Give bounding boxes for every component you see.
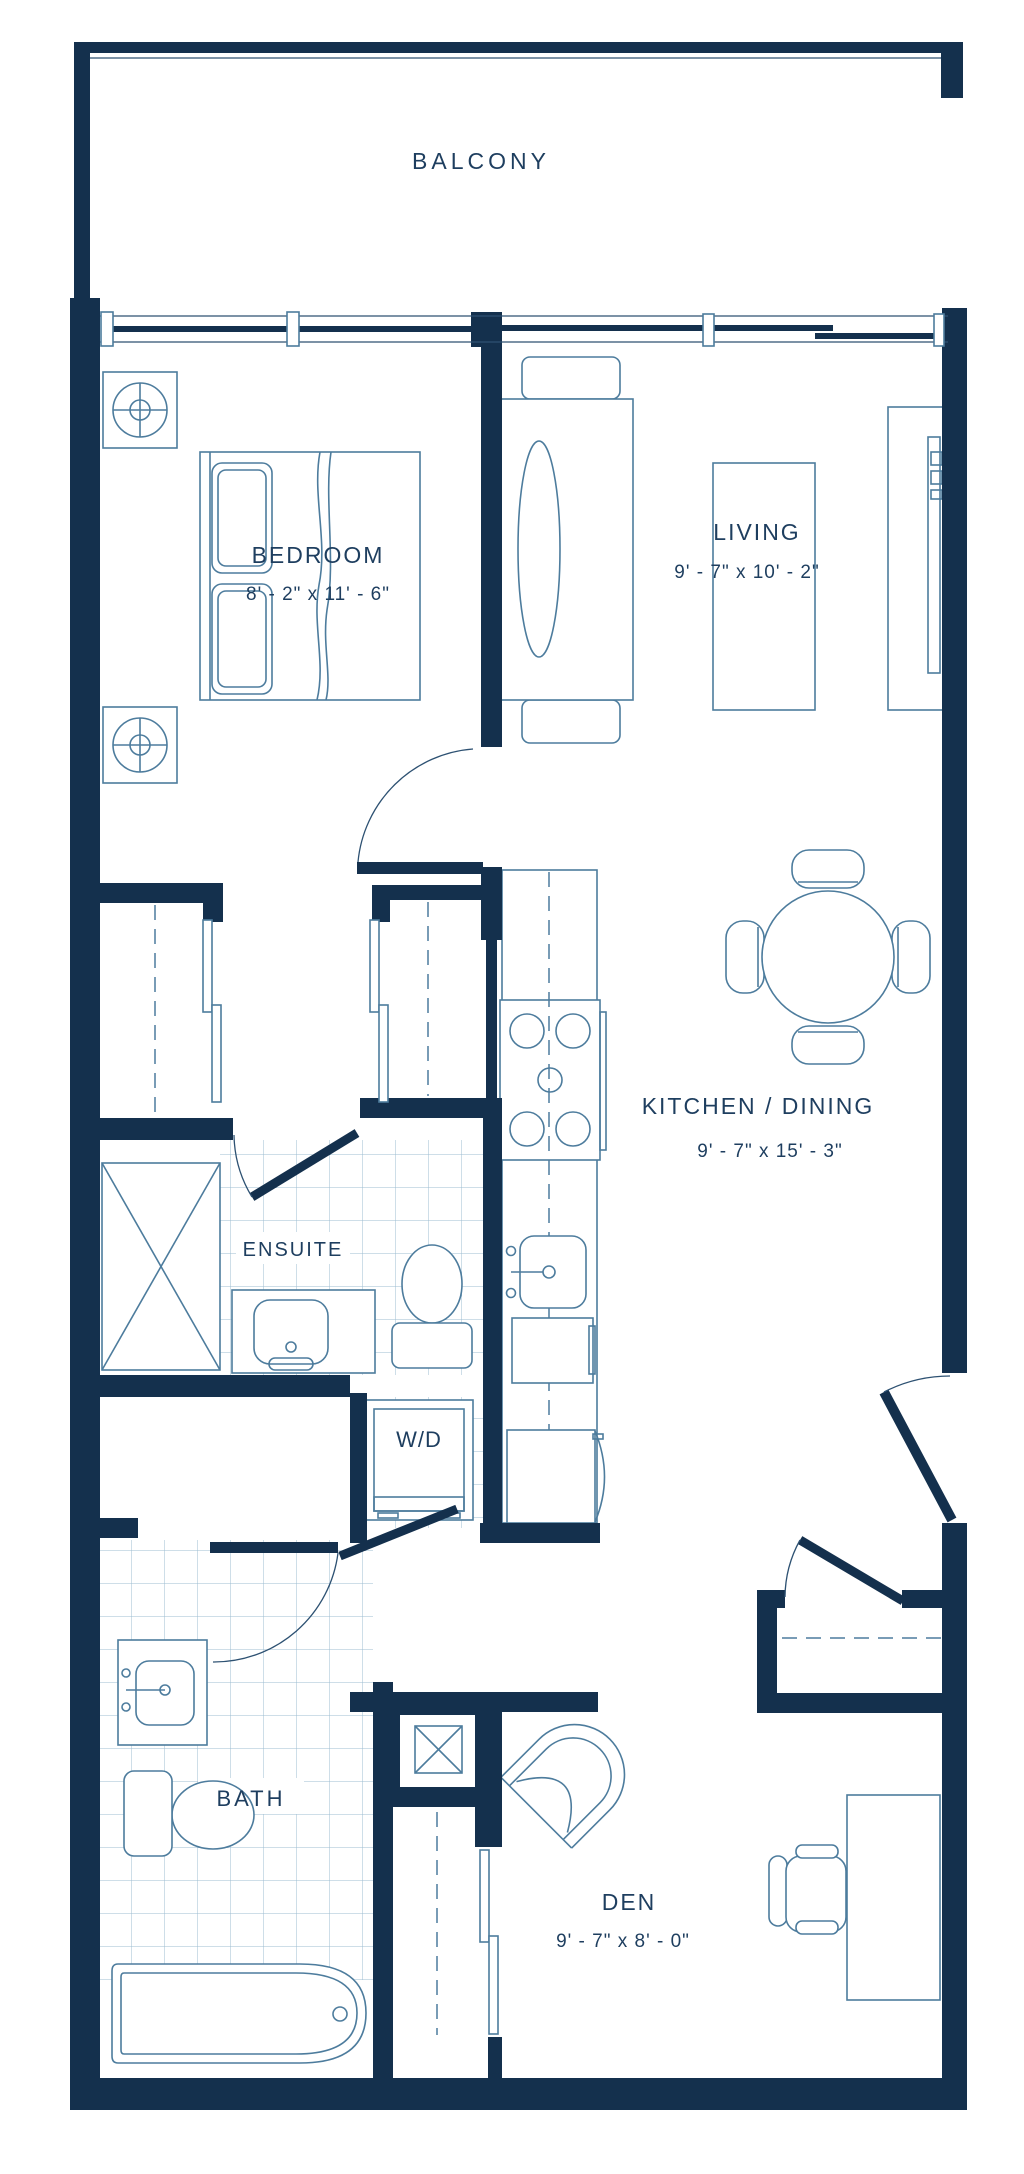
bath-toilet-tank [124,1771,172,1856]
balcony-label: BALCONY [412,148,550,174]
kitchen-dining-label: KITCHEN / DINING [642,1093,875,1119]
bathtub [112,1964,366,2063]
dishwasher [512,1318,593,1383]
ensuite-label: ENSUITE [243,1239,344,1261]
bath-door [210,1542,338,1553]
living-dims: 9' - 7" x 10' - 2" [674,562,819,583]
den-label: DEN [602,1889,657,1915]
laundry-label: W/D [396,1427,442,1452]
floor-plan: BALCONY BEDROOM 8' - 2" x 11' - 6" LIVIN… [0,0,1024,2174]
cooktop [500,1000,600,1160]
living-label: LIVING [713,519,800,545]
bath-label: BATH [216,1786,285,1811]
faucet-icon [543,1266,555,1278]
window-mullion [101,312,113,346]
den-dims: 9' - 7" x 8' - 0" [556,1931,690,1952]
sofa-armrest [522,357,620,399]
washer-dryer [365,1400,473,1520]
ensuite-toilet-bowl [402,1245,462,1323]
dining-table [762,891,894,1023]
bedroom-window-glazing [113,326,287,332]
tv-screen [928,437,940,673]
balcony-sliding-door [502,325,833,331]
lamp-icon [113,383,167,437]
sofa-armrest [522,700,620,743]
shaft [400,1715,475,1787]
kitchen-dining-dims: 9' - 7" x 15' - 3" [697,1141,842,1162]
desk [847,1795,940,2000]
window-mullion [703,314,714,346]
bedroom-dims: 8' - 2" x 11' - 6" [246,584,390,605]
kitchen [500,870,606,1523]
bed [200,452,420,700]
lamp-icon [113,718,167,772]
bedroom-door [357,862,483,874]
sofa [500,399,633,700]
bedroom-label: BEDROOM [252,542,385,568]
office-chair [769,1845,846,1934]
ensuite-toilet-tank [392,1323,472,1368]
window-mullion [934,314,944,346]
window-mullion [287,312,299,346]
fridge [507,1430,595,1523]
